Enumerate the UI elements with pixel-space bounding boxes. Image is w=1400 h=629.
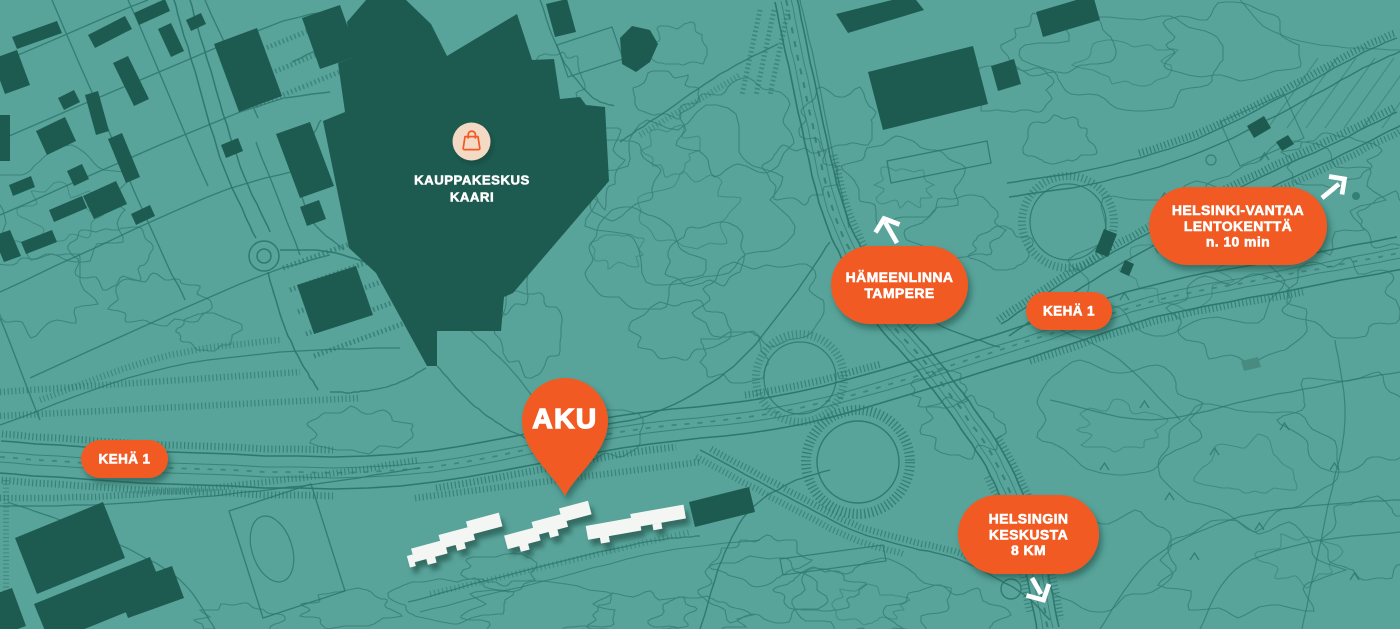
svg-text:KAARI: KAARI	[450, 190, 494, 205]
svg-text:HÄMEENLINNA: HÄMEENLINNA	[846, 269, 954, 285]
svg-text:LENTOKENTTÄ: LENTOKENTTÄ	[1184, 218, 1292, 234]
svg-text:KAUPPAKESKUS: KAUPPAKESKUS	[414, 173, 530, 188]
svg-text:AKU: AKU	[532, 403, 597, 434]
svg-text:KEHÄ 1: KEHÄ 1	[1043, 304, 1095, 319]
svg-text:HELSINKI-VANTAA: HELSINKI-VANTAA	[1172, 202, 1304, 218]
svg-text:HELSINGIN: HELSINGIN	[989, 511, 1069, 527]
svg-text:KEHÄ 1: KEHÄ 1	[99, 452, 151, 467]
svg-text:8 KM: 8 KM	[1011, 542, 1046, 558]
svg-text:n. 10 min: n. 10 min	[1206, 234, 1270, 250]
svg-text:TAMPERE: TAMPERE	[864, 285, 934, 301]
svg-text:KESKUSTA: KESKUSTA	[989, 526, 1068, 542]
